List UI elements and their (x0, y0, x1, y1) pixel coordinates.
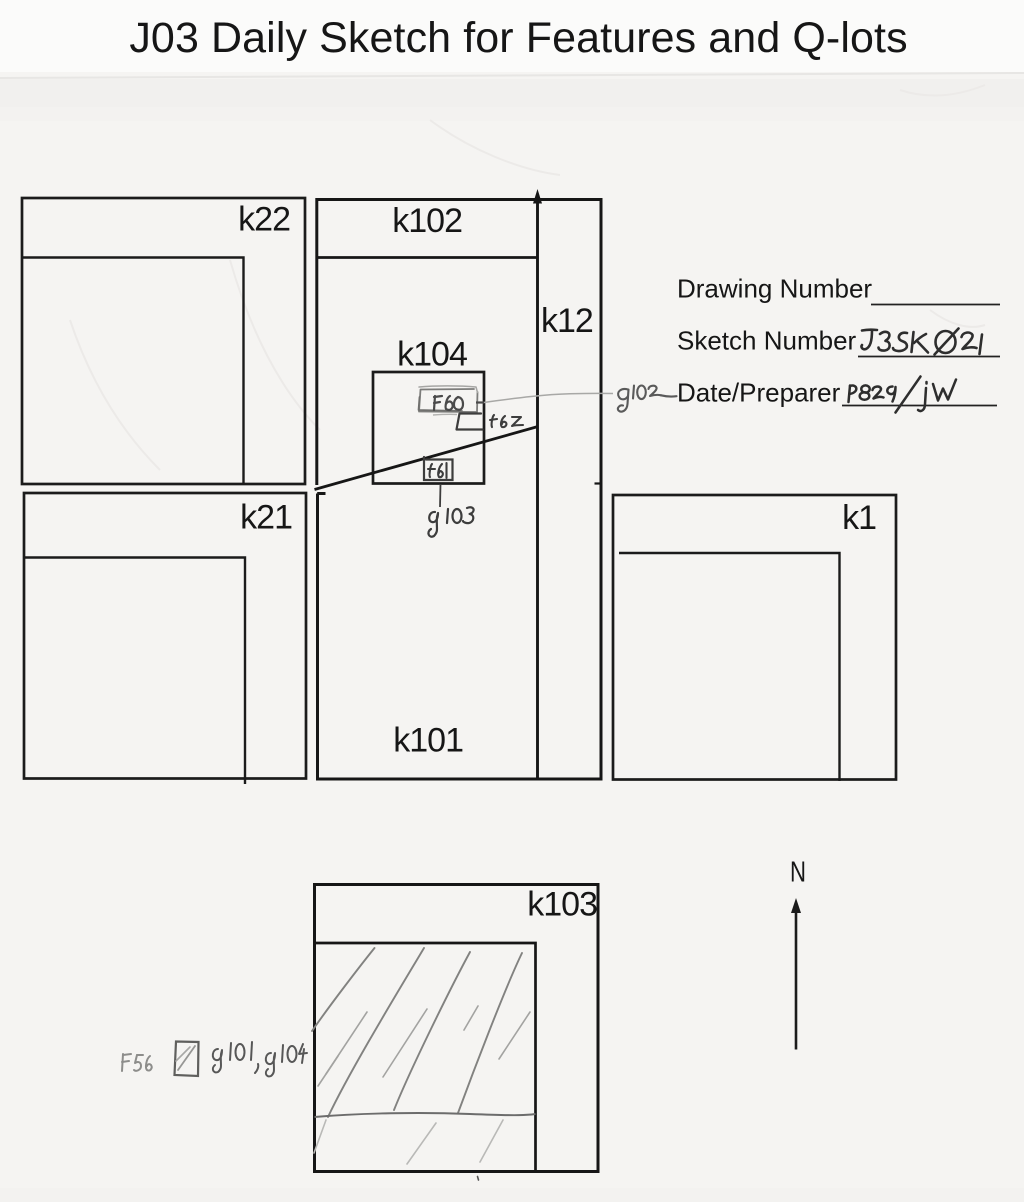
svg-text:k104: k104 (397, 336, 467, 374)
svg-text:N: N (790, 857, 806, 889)
svg-text:k1: k1 (842, 499, 876, 537)
svg-text:k22: k22 (238, 201, 290, 239)
svg-text:J03 Daily Sketch for Features: J03 Daily Sketch for Features and Q-lots (129, 14, 907, 62)
svg-text:k21: k21 (240, 499, 292, 537)
svg-text:k12: k12 (541, 302, 593, 340)
svg-text:Drawing Number: Drawing Number (677, 274, 872, 304)
svg-text:k103: k103 (527, 886, 597, 924)
svg-text:k101: k101 (393, 722, 463, 760)
svg-text:Sketch Number: Sketch Number (677, 326, 857, 356)
svg-text:k102: k102 (392, 202, 462, 240)
svg-text:Date/Preparer: Date/Preparer (677, 378, 841, 408)
